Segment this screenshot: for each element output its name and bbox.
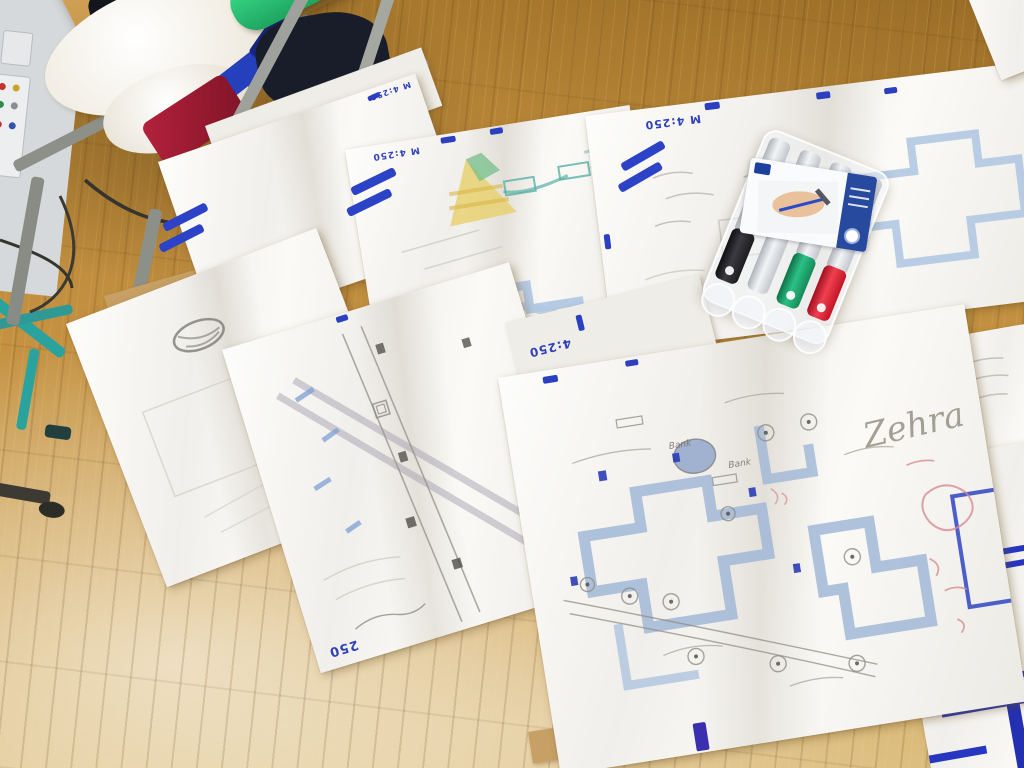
label-brand-logo [754,162,772,175]
photo-floor-plan-workshop: M 4:250 M 4:250 [0,0,1024,768]
scale-label-short: 4:250 [527,336,572,360]
site-plan-drawing [498,304,1024,768]
blue-edge-mark [575,314,585,331]
paper-sheet-site-plan: Bank Bank Zehra [498,304,1024,768]
